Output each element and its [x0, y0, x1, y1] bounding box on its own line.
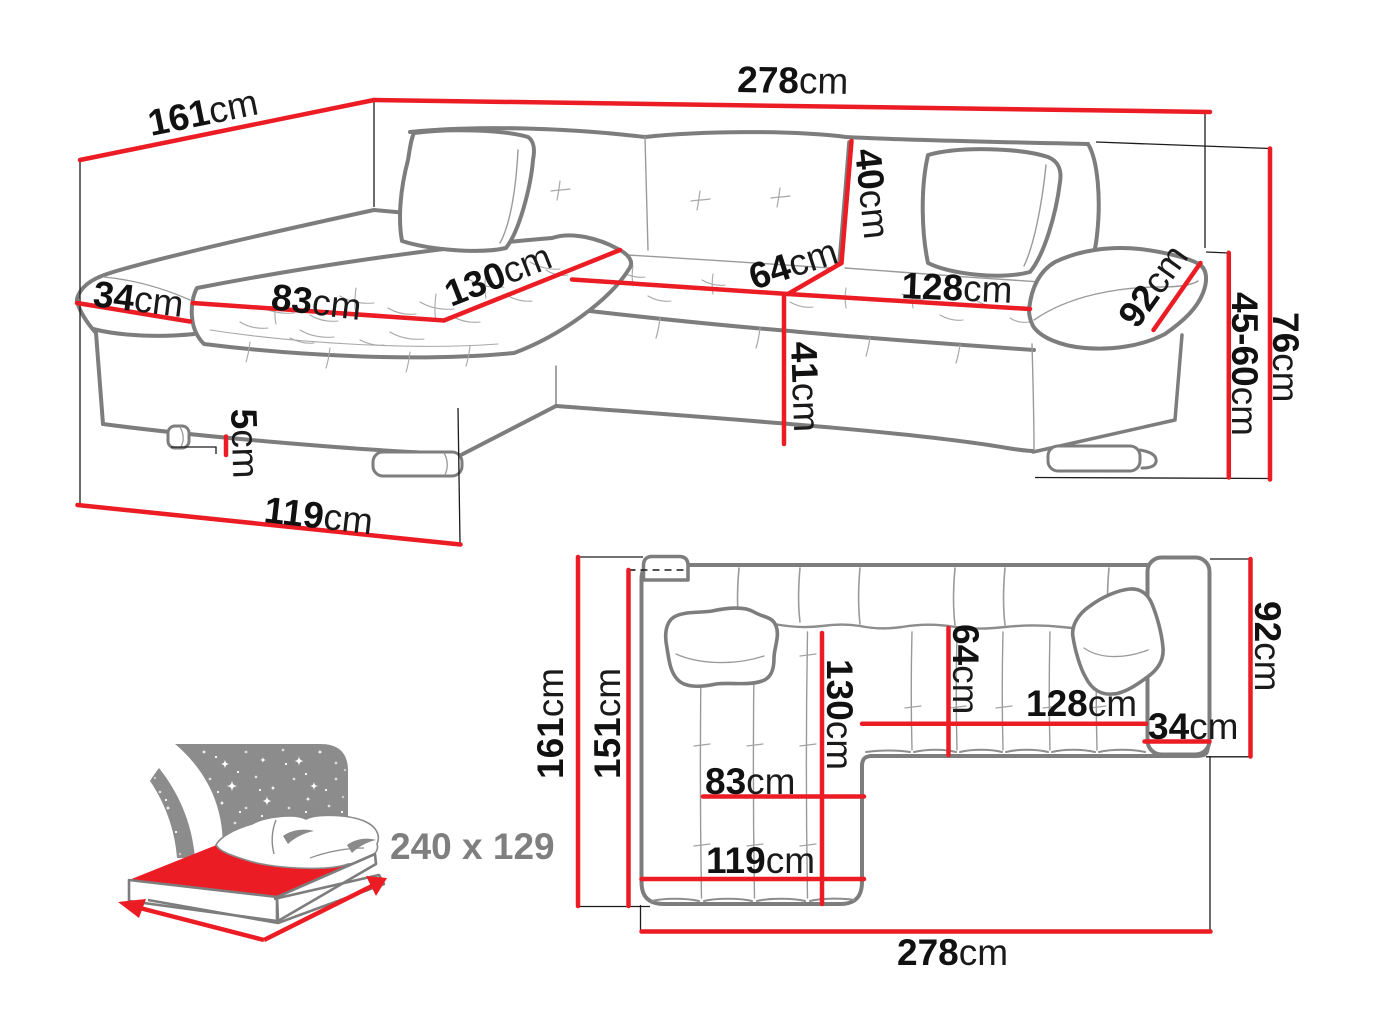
svg-text:151cm: 151cm — [587, 668, 628, 779]
svg-text:83cm: 83cm — [705, 761, 795, 802]
svg-text:278cm: 278cm — [897, 932, 1008, 973]
svg-text:92cm: 92cm — [1247, 601, 1288, 691]
svg-text:34cm: 34cm — [1148, 706, 1238, 747]
svg-text:119cm: 119cm — [706, 840, 815, 881]
svg-text:41cm: 41cm — [783, 341, 827, 433]
svg-text:128cm: 128cm — [1026, 683, 1137, 724]
svg-text:128cm: 128cm — [901, 265, 1014, 311]
svg-text:45-60cm: 45-60cm — [1224, 292, 1265, 436]
svg-text:130cm: 130cm — [819, 659, 860, 770]
svg-text:76cm: 76cm — [1265, 312, 1306, 402]
svg-text:161cm: 161cm — [530, 668, 571, 779]
svg-text:5cm: 5cm — [223, 408, 266, 479]
svg-text:240 x 129: 240 x 129 — [390, 826, 555, 867]
svg-text:64cm: 64cm — [945, 624, 986, 714]
svg-text:278cm: 278cm — [737, 59, 849, 102]
